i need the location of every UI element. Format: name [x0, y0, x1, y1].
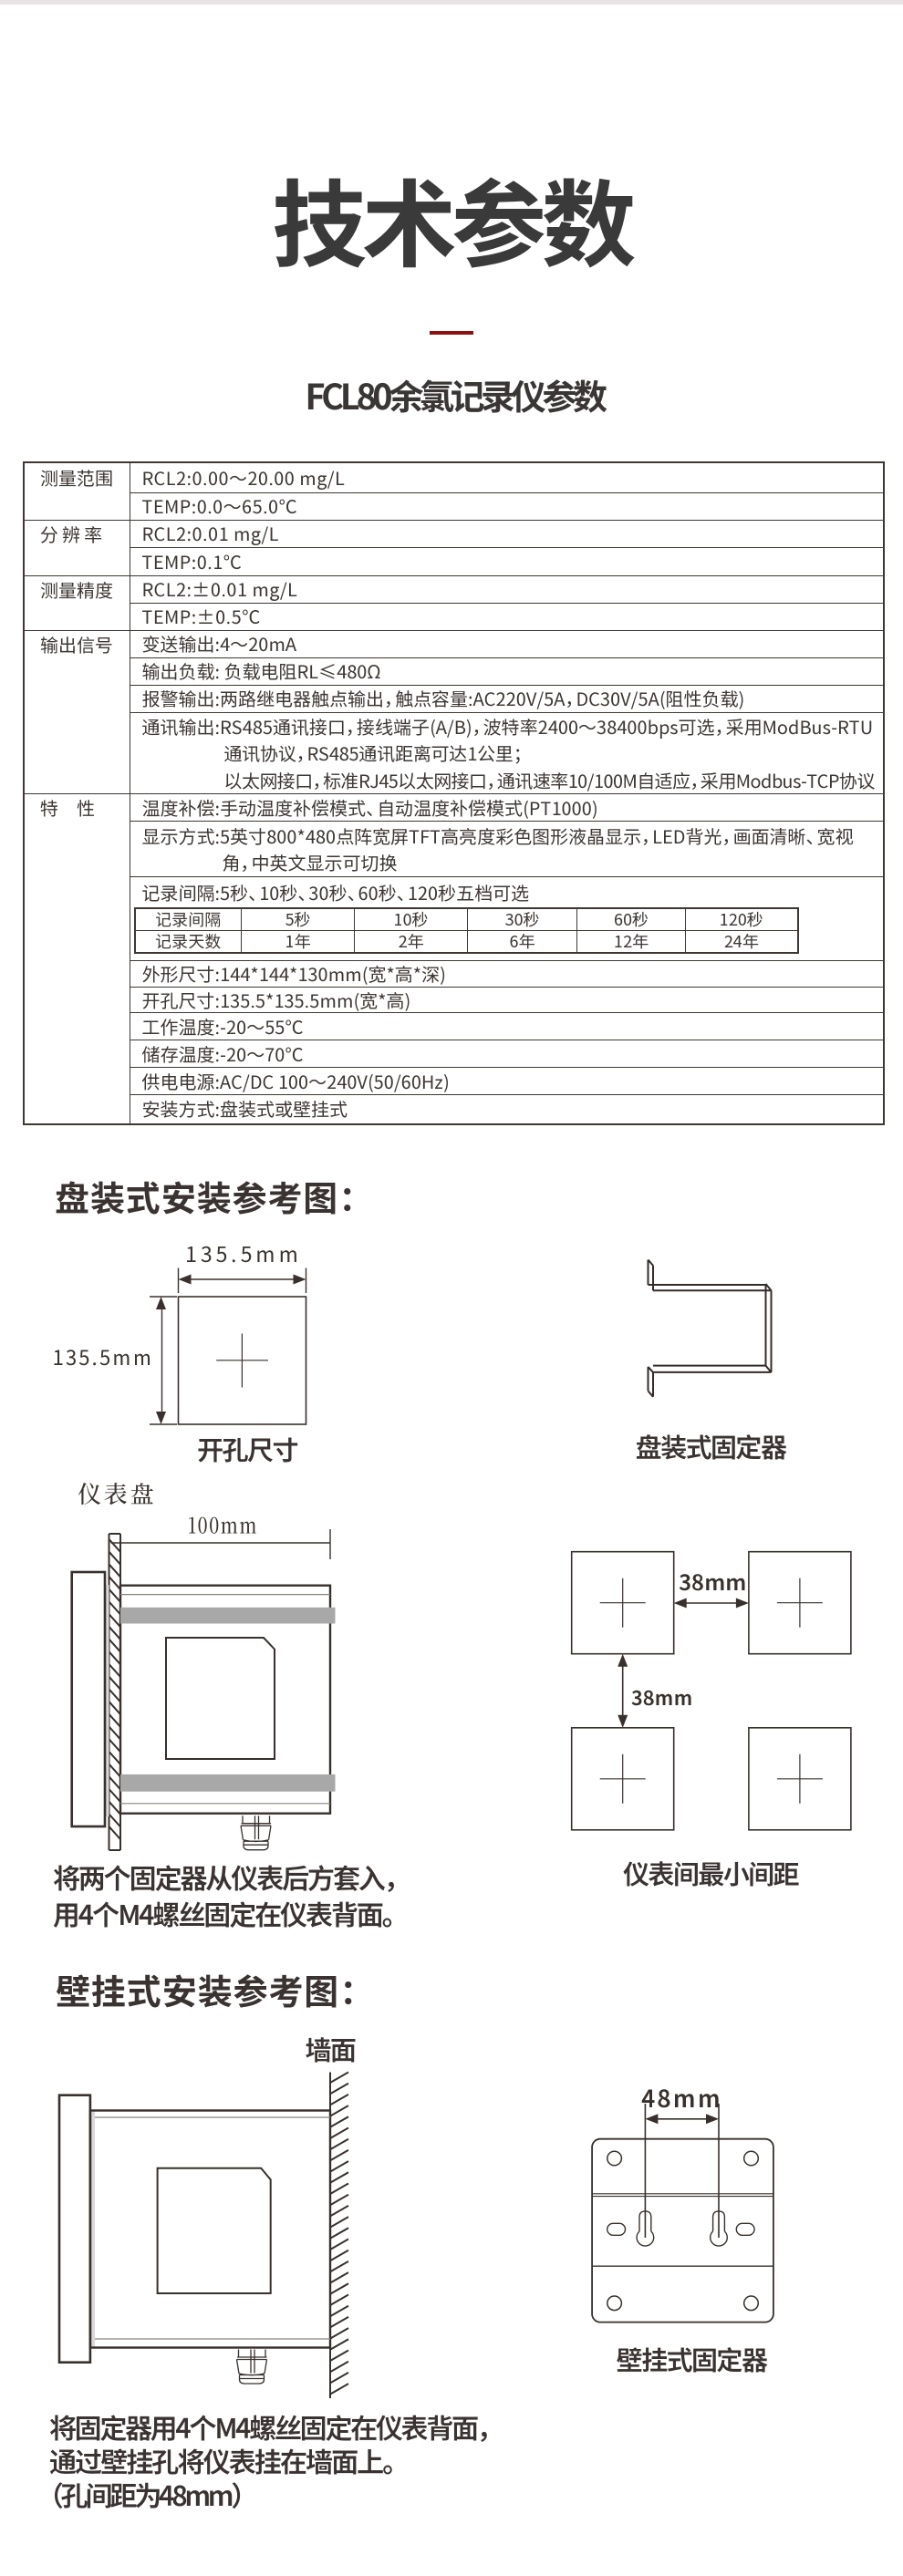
svg-text:100mm: 100mm	[188, 1508, 258, 1540]
